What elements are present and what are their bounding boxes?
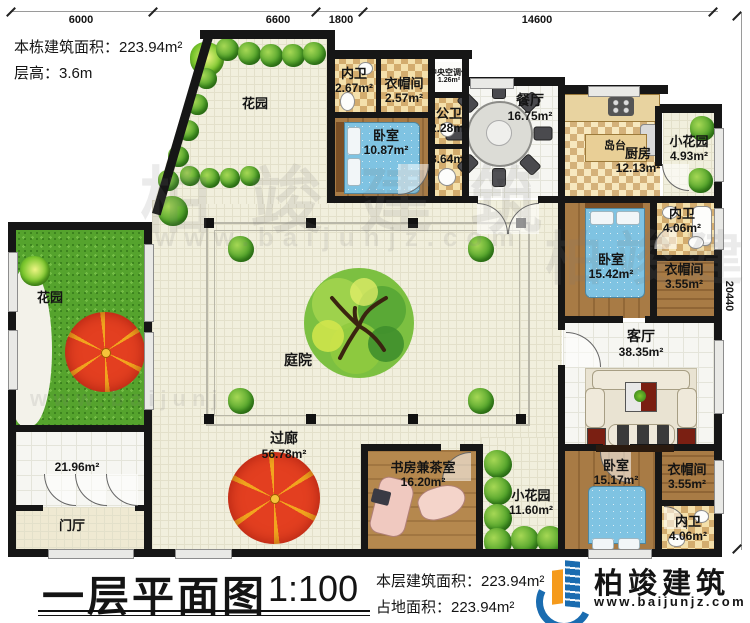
coffee-table-plant <box>634 390 646 402</box>
floor-height-text: 层高：3.6m <box>14 62 92 83</box>
wall <box>430 144 469 149</box>
dim-6600: 6600 <box>248 14 308 26</box>
title-underline-2 <box>38 615 370 616</box>
window <box>144 332 154 410</box>
bed <box>588 486 646 544</box>
wall <box>144 430 152 557</box>
sofa-right <box>677 388 697 428</box>
label-bath1: 内卫2.67m² <box>330 66 378 95</box>
wall <box>200 30 335 39</box>
column <box>306 218 316 228</box>
label-foyer: 门厅 <box>44 518 100 533</box>
window <box>144 244 154 322</box>
wall <box>361 444 441 451</box>
label-garden-left: 花园 <box>22 290 78 305</box>
column <box>204 218 214 228</box>
label-room2196: 21.96m² <box>42 460 112 474</box>
column <box>408 414 418 424</box>
tv-cabinet <box>596 445 674 452</box>
sofa-bench <box>608 424 675 446</box>
column <box>204 414 214 424</box>
bush <box>180 166 200 186</box>
column <box>408 218 418 228</box>
dimension-tick <box>148 7 158 17</box>
label-hall364: 3.64m² <box>424 152 474 166</box>
toilet <box>688 236 704 249</box>
garden-umbrella <box>65 312 145 392</box>
bush <box>260 44 283 67</box>
plant <box>468 236 494 262</box>
label-study: 书房兼茶室16.20m² <box>374 460 472 489</box>
wall <box>660 104 722 113</box>
label-closet2: 衣帽间3.55m² <box>653 262 715 291</box>
dimension-tick <box>708 7 718 17</box>
footer-floor-area: 本层建筑面积：223.94m² <box>376 570 544 591</box>
label-bath4: 内卫4.06m² <box>662 514 714 543</box>
window <box>588 549 652 559</box>
label-garden-topleft: 花园 <box>225 96 285 111</box>
wall <box>650 255 714 261</box>
plant <box>228 236 254 262</box>
label-garden-small2: 小花园11.60m² <box>500 488 562 517</box>
floor-plan-page: 6000 6600 1800 14600 20440 本栋建筑面积：223.94… <box>0 0 750 623</box>
label-bedroom2: 卧室15.42m² <box>575 252 647 281</box>
window <box>470 78 514 89</box>
dining-chair <box>534 127 553 141</box>
wall <box>361 444 368 557</box>
label-living: 客厅38.35m² <box>608 328 674 359</box>
label-bedroom1: 卧室10.87m² <box>345 128 427 157</box>
wall <box>563 316 623 323</box>
wall <box>327 50 472 59</box>
dining-table-center <box>486 120 512 146</box>
window <box>588 86 640 97</box>
dim-20440: 20440 <box>723 273 735 319</box>
dim-14600: 14600 <box>507 14 567 26</box>
bed-pillow <box>347 158 361 186</box>
window <box>8 252 18 312</box>
wall <box>430 92 469 98</box>
wall <box>327 196 470 203</box>
bush <box>238 42 261 65</box>
label-closet1: 衣帽间2.57m² <box>378 76 430 105</box>
wall <box>8 425 148 432</box>
wall <box>8 222 148 230</box>
bush <box>484 450 512 478</box>
label-bath3: 内卫4.06m² <box>655 206 709 235</box>
wall <box>476 444 483 557</box>
entry-door <box>48 549 134 559</box>
sofa-left <box>585 388 605 428</box>
courtyard-umbrella <box>228 452 320 544</box>
label-dining: 餐厅16.75m² <box>500 92 560 123</box>
bush <box>688 168 713 193</box>
label-bath2: 公卫2.28m² <box>428 106 470 135</box>
title-underline <box>38 610 370 612</box>
wall <box>660 500 714 506</box>
bush <box>216 38 239 61</box>
plan-title: 一层平面图 <box>42 563 267 623</box>
plan-scale: 1:100 <box>268 568 358 610</box>
window <box>175 549 232 559</box>
dimension-tick <box>6 7 16 17</box>
column <box>516 414 526 424</box>
label-garden-small1: 小花园4.93m² <box>662 134 716 163</box>
bed-pillow <box>616 211 640 225</box>
window <box>714 340 724 414</box>
wall <box>558 365 565 557</box>
column <box>306 414 316 424</box>
tree <box>20 256 50 286</box>
label-closet3: 衣帽间3.55m² <box>658 462 716 491</box>
bed-headboard <box>336 122 344 192</box>
label-bedroom3: 卧室15.17m² <box>580 458 652 487</box>
brand-website: www.baijunjz.com <box>594 594 746 609</box>
dim-6000: 6000 <box>51 14 111 26</box>
bush <box>282 44 305 67</box>
label-courtyard: 庭院 <box>268 352 328 369</box>
wall <box>558 196 565 330</box>
footer-land-area: 占地面积：223.94m² <box>376 596 514 617</box>
bed-pillow <box>590 211 614 225</box>
window <box>8 330 18 390</box>
wall <box>8 505 43 511</box>
wall <box>327 36 335 202</box>
wall <box>558 196 722 203</box>
wall <box>465 196 478 203</box>
bush <box>240 166 260 186</box>
plant <box>468 388 494 414</box>
washer <box>438 168 456 186</box>
window <box>714 208 724 250</box>
dining-chair <box>492 168 506 187</box>
right-dimension-line <box>741 13 742 550</box>
label-ac: 中央空调位1.26m² <box>428 68 470 86</box>
stove <box>608 97 634 116</box>
bush <box>303 42 326 65</box>
plant <box>228 388 254 414</box>
bush <box>220 168 240 188</box>
brand-logo-icon <box>536 558 588 620</box>
wall <box>645 316 715 323</box>
dim-1800: 1800 <box>316 14 366 26</box>
building-area-text: 本栋建筑面积：223.94m² <box>14 36 182 57</box>
label-corridor: 过廊56.78m² <box>252 430 316 461</box>
bush <box>200 168 220 188</box>
